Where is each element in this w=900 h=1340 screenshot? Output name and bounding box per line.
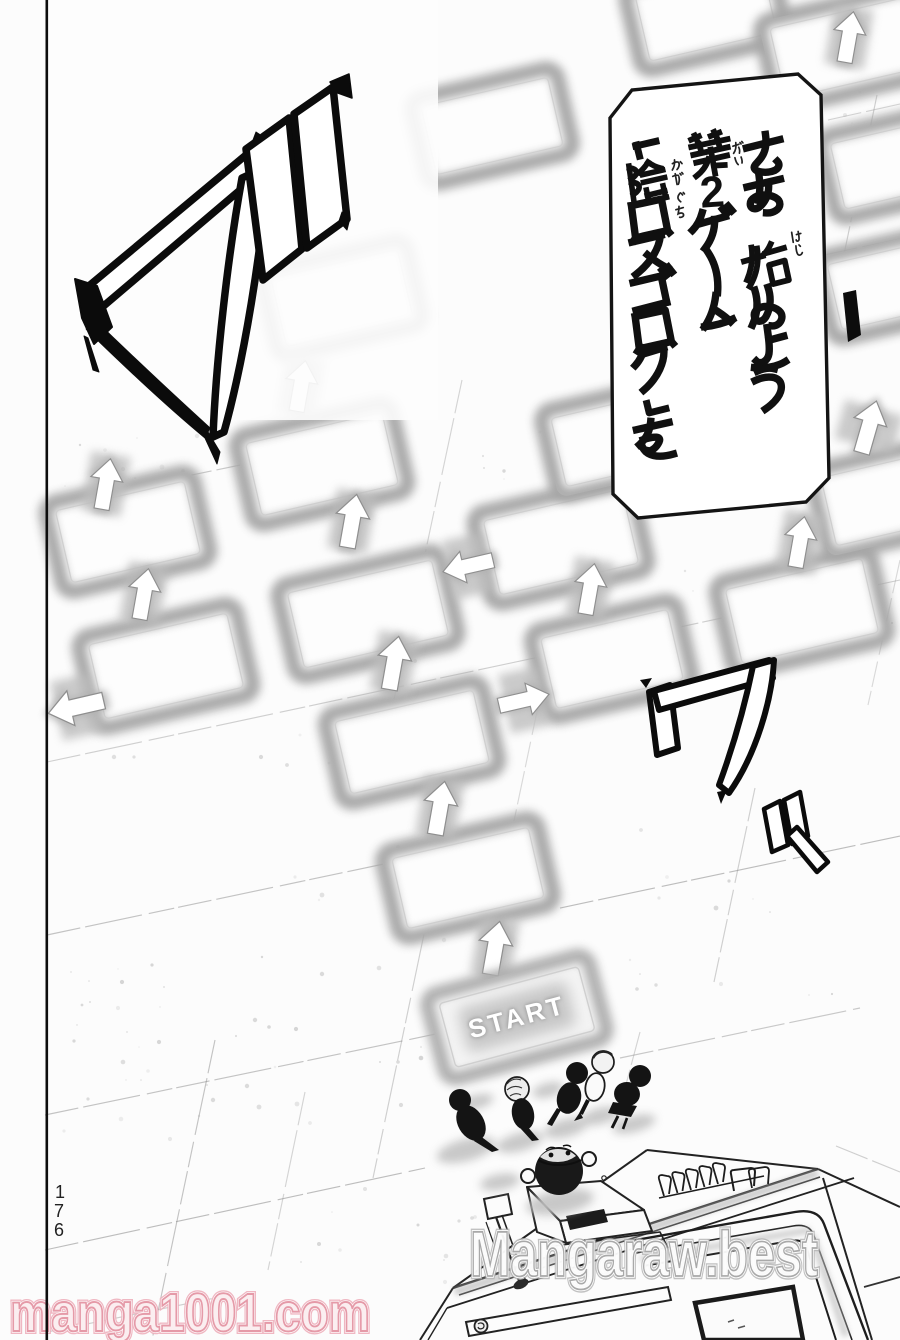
svg-text:manga1001.com: manga1001.com xyxy=(10,1283,370,1340)
svg-text:Mangaraw.best: Mangaraw.best xyxy=(470,1218,818,1290)
svg-text:1: 1 xyxy=(55,1182,65,1202)
svg-text:2: 2 xyxy=(698,167,726,218)
svg-text:7: 7 xyxy=(54,1201,64,1221)
svg-text:6: 6 xyxy=(54,1220,64,1240)
